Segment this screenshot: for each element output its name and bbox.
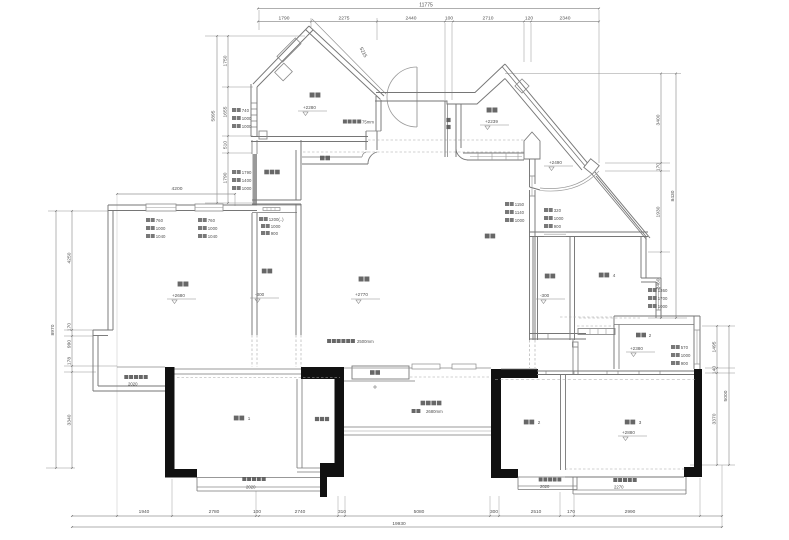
svg-text:11775: 11775: [419, 3, 433, 9]
svg-text:760: 760: [208, 218, 216, 223]
svg-text:4250: 4250: [67, 252, 73, 263]
svg-text:+2490: +2490: [549, 160, 562, 165]
svg-text:-300: -300: [255, 292, 265, 297]
svg-text:4: 4: [613, 273, 616, 278]
svg-text:170: 170: [656, 163, 662, 171]
svg-text:2740: 2740: [295, 509, 306, 515]
svg-text:100: 100: [253, 509, 261, 515]
svg-text:1940: 1940: [139, 509, 150, 515]
svg-text:2510: 2510: [531, 509, 542, 515]
svg-text:3: 3: [639, 420, 642, 425]
svg-text:990: 990: [67, 340, 73, 348]
svg-text:300: 300: [490, 509, 498, 515]
svg-text:1000: 1000: [242, 186, 252, 191]
svg-text:1495: 1495: [712, 341, 718, 352]
svg-text:900: 900: [271, 231, 279, 236]
svg-text:2340: 2340: [560, 16, 571, 22]
svg-text:2020: 2020: [246, 485, 256, 490]
svg-text:510: 510: [223, 141, 229, 149]
svg-text:1790: 1790: [279, 16, 290, 22]
svg-text:1200(..): 1200(..): [269, 217, 284, 222]
svg-text:1000: 1000: [658, 304, 668, 309]
svg-text:1930: 1930: [656, 206, 662, 217]
svg-text:2440: 2440: [406, 16, 417, 22]
svg-text:1000: 1000: [156, 226, 166, 231]
svg-text:100: 100: [445, 16, 453, 22]
svg-text:760: 760: [156, 218, 164, 223]
svg-text:2990: 2990: [625, 509, 636, 515]
svg-text:120: 120: [525, 16, 533, 22]
svg-text:1040: 1040: [208, 234, 218, 239]
svg-text:1000: 1000: [208, 226, 218, 231]
svg-text:+2380: +2380: [630, 346, 643, 351]
svg-text:900: 900: [681, 361, 689, 366]
svg-text:1400: 1400: [242, 178, 252, 183]
svg-text:19930: 19930: [392, 521, 406, 527]
svg-text:8970: 8970: [50, 324, 56, 335]
svg-text:+2880: +2880: [622, 430, 635, 435]
svg-text:1000: 1000: [242, 116, 252, 121]
svg-text:1000: 1000: [515, 218, 525, 223]
svg-text:+2280: +2280: [303, 105, 316, 110]
svg-text:178: 178: [67, 357, 73, 365]
svg-text:5080: 5080: [414, 509, 425, 515]
svg-text:740: 740: [242, 108, 250, 113]
svg-text:2275: 2275: [339, 16, 350, 22]
svg-text:1700: 1700: [658, 296, 668, 301]
svg-text:5000: 5000: [723, 390, 729, 401]
svg-text:1790: 1790: [242, 170, 252, 175]
svg-text:900: 900: [554, 224, 562, 229]
svg-text:4200: 4200: [172, 186, 183, 192]
svg-text:2780: 2780: [209, 509, 220, 515]
svg-text:1000: 1000: [271, 224, 281, 229]
svg-text:1040: 1040: [156, 234, 166, 239]
svg-text:1150: 1150: [515, 202, 525, 207]
svg-text:1000: 1000: [242, 124, 252, 129]
svg-text:2270: 2270: [614, 485, 624, 490]
svg-text:2680mm: 2680mm: [426, 409, 443, 414]
svg-text:+2239: +2239: [485, 119, 498, 124]
svg-text:1140: 1140: [515, 210, 525, 215]
svg-text:75mm: 75mm: [362, 120, 374, 125]
svg-text:1790: 1790: [223, 172, 229, 183]
svg-text:2: 2: [538, 420, 541, 425]
svg-text:2020: 2020: [540, 484, 550, 489]
svg-text:1: 1: [248, 416, 251, 421]
svg-text:+2770: +2770: [355, 292, 368, 297]
svg-text:5895: 5895: [211, 110, 217, 121]
svg-text:2710: 2710: [483, 16, 494, 22]
svg-text:320: 320: [554, 208, 562, 213]
svg-text:1655: 1655: [223, 106, 229, 117]
svg-text:1000: 1000: [681, 353, 691, 358]
svg-text:1360: 1360: [658, 288, 668, 293]
svg-text:1750: 1750: [223, 55, 229, 66]
svg-text:2020: 2020: [128, 382, 138, 387]
svg-text:8430: 8430: [670, 190, 676, 201]
svg-text:-300: -300: [540, 293, 550, 298]
svg-text:3340: 3340: [67, 414, 73, 425]
svg-text:3400: 3400: [656, 114, 662, 125]
svg-text:570: 570: [681, 345, 689, 350]
svg-text:3370: 3370: [712, 413, 718, 424]
svg-text:2500mm: 2500mm: [357, 339, 374, 344]
svg-text:1000: 1000: [554, 216, 564, 221]
svg-text:+2680: +2680: [172, 293, 185, 298]
